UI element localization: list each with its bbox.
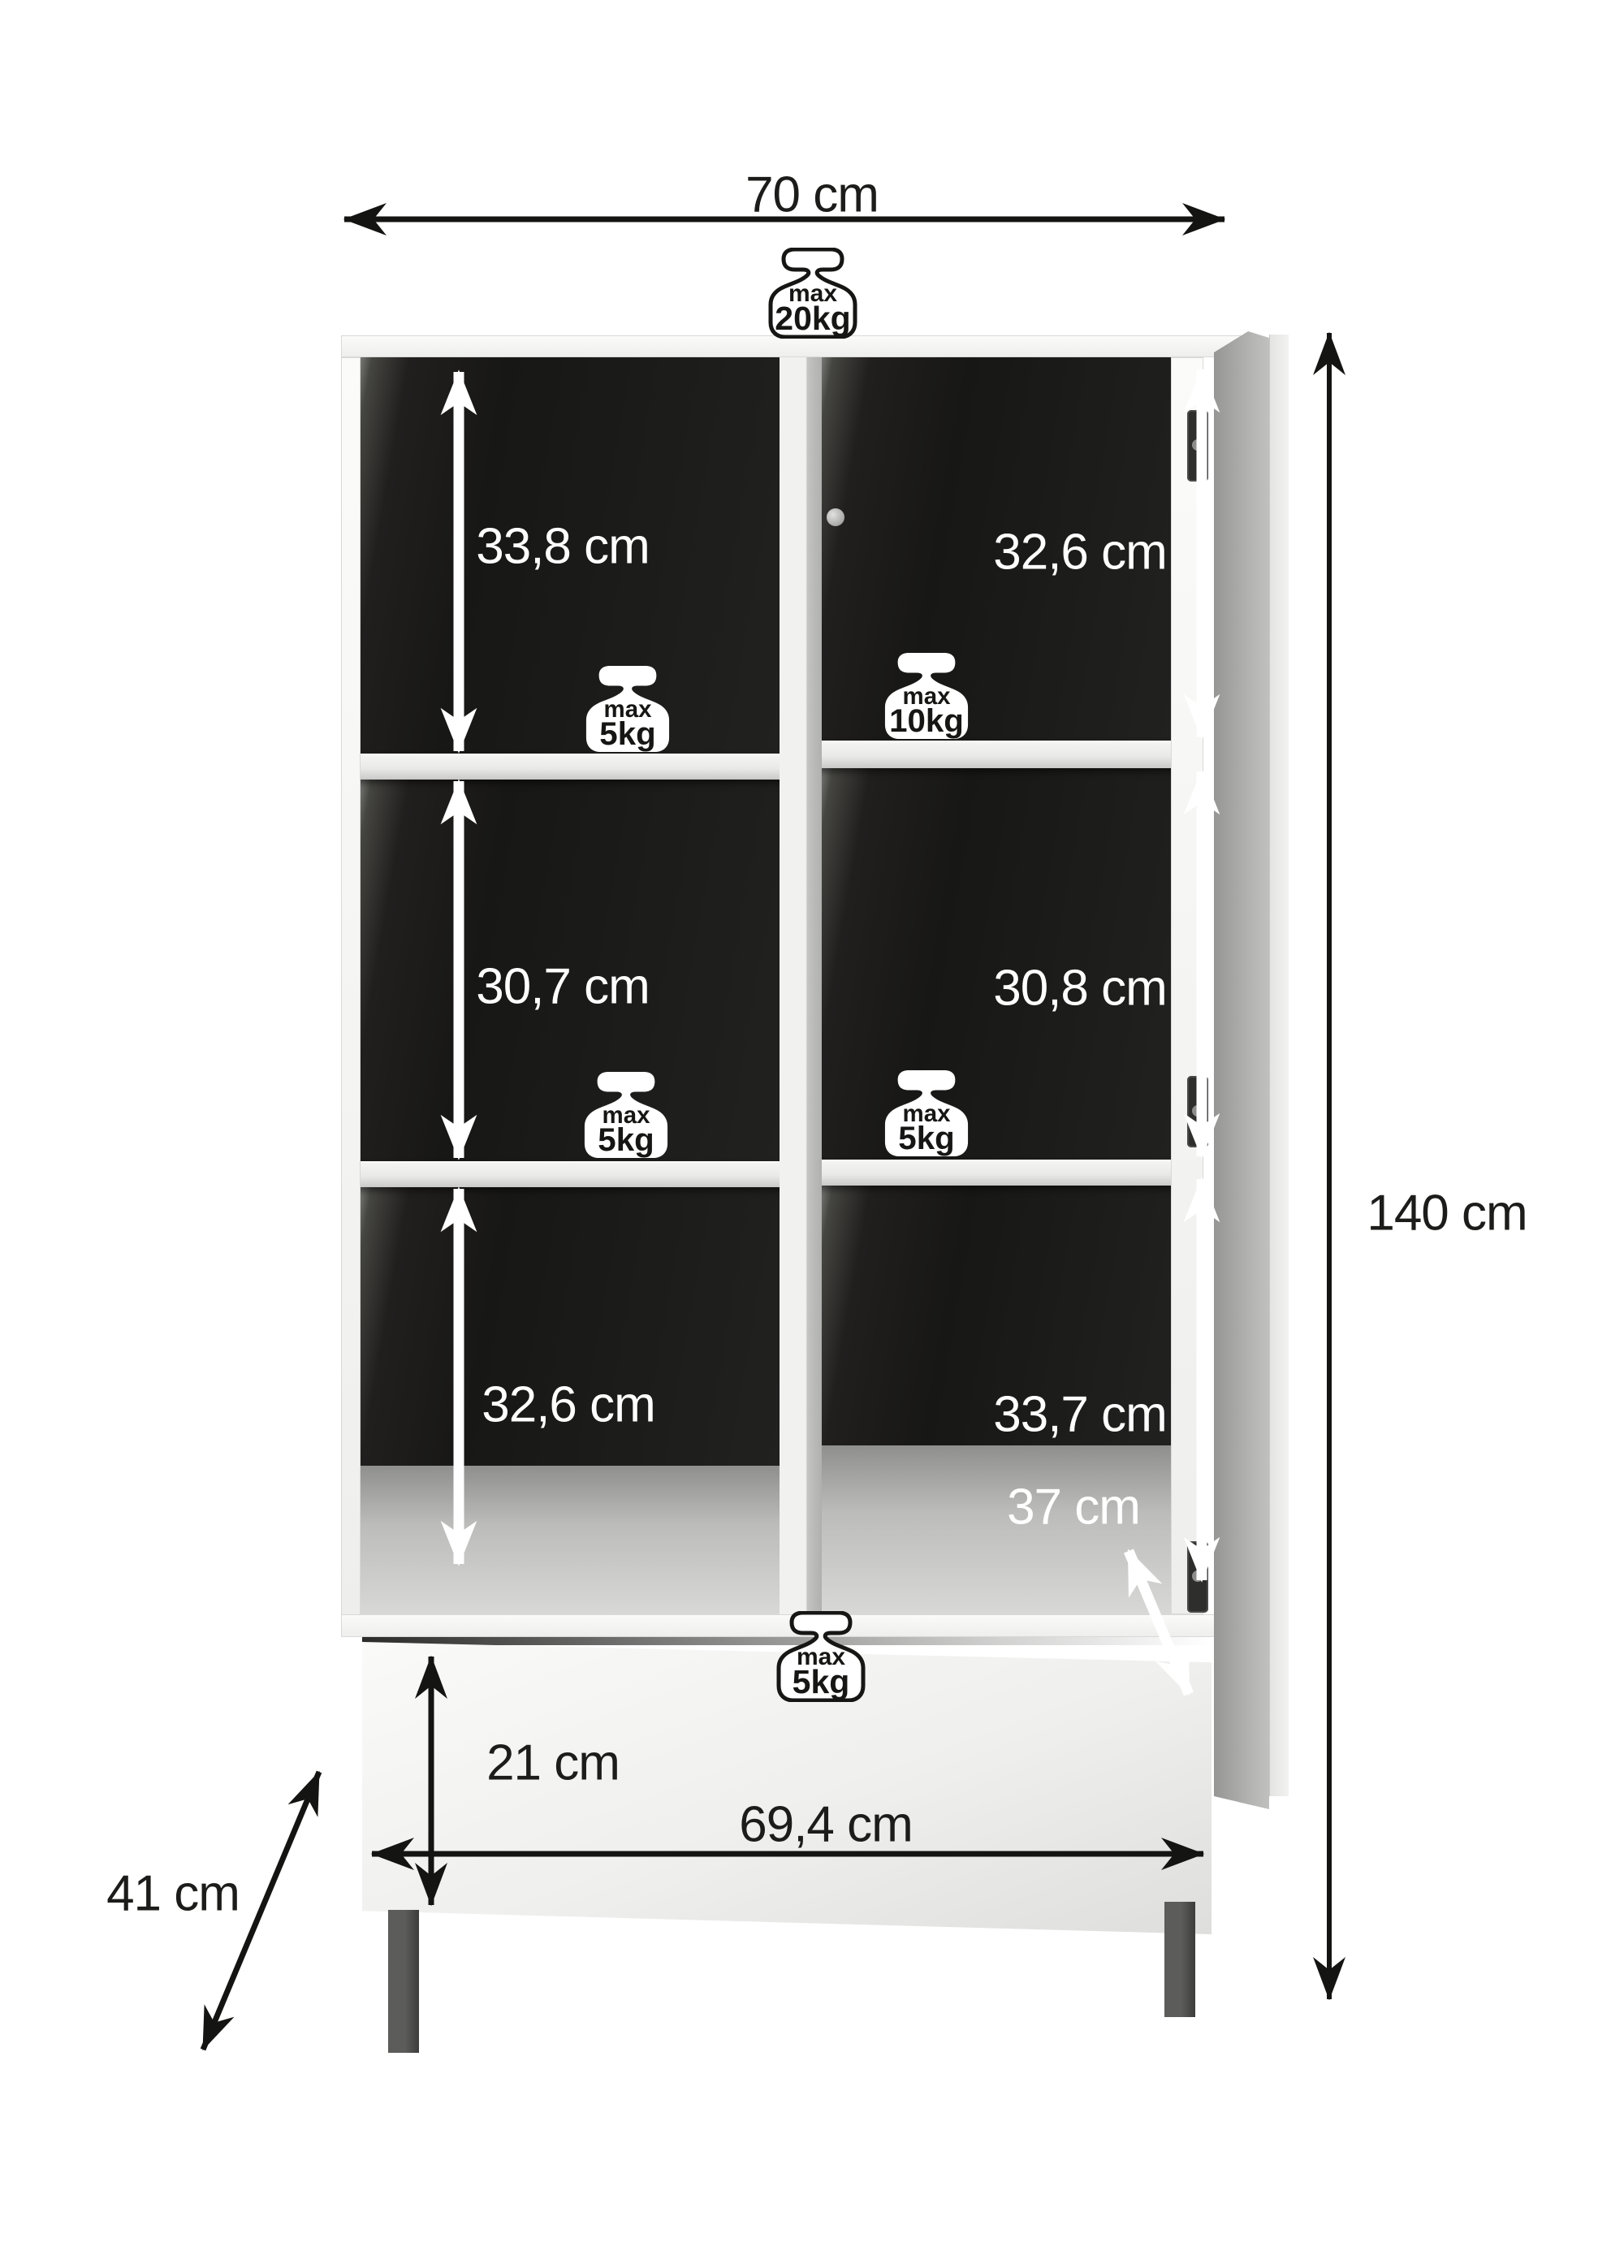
max-load-icon-top: max 20kg <box>763 248 862 339</box>
label-drawer-height: 21 cm <box>486 1734 620 1792</box>
label-height-bottom-left: 32,6 cm <box>482 1376 655 1434</box>
max-load-icon-shelf-top-right: max 10kg <box>879 651 974 741</box>
cabinet-door-front-edge <box>1269 335 1289 1796</box>
cabinet-top-board <box>341 335 1242 357</box>
cabinet-door-inner-face <box>1214 331 1269 1809</box>
door-hinge-middle <box>1187 1076 1208 1147</box>
max-load-icon-shelf-top-left: max 5kg <box>580 664 676 754</box>
label-drawer-width: 69,4 cm <box>739 1796 913 1854</box>
furniture-dimension-diagram: max 20kg max 5kg max 10kg max 5kg max 5k… <box>0 0 1624 2268</box>
max-load-icon-drawer: max 5kg <box>771 1611 870 1702</box>
svg-text:5kg: 5kg <box>598 1121 654 1158</box>
shelf-right-upper <box>812 741 1176 768</box>
label-height-middle-right: 30,8 cm <box>993 960 1167 1017</box>
max-load-icon-shelf-middle-left: max 5kg <box>578 1070 674 1160</box>
label-height-total: 140 cm <box>1367 1185 1527 1242</box>
svg-text:20kg: 20kg <box>775 300 850 337</box>
cabinet-left-wall <box>341 357 361 1637</box>
label-height-top-left: 33,8 cm <box>476 518 650 576</box>
shelf-left-upper <box>351 754 786 780</box>
cabinet-right-wall <box>1171 357 1203 1614</box>
svg-text:10kg: 10kg <box>889 702 964 739</box>
shelf-right-lower <box>812 1160 1176 1186</box>
shelf-left-lower <box>351 1161 786 1187</box>
max-load-icon-shelf-middle-right: max 5kg <box>879 1069 974 1158</box>
label-width-top: 70 cm <box>745 166 879 224</box>
door-hinge-bottom <box>1187 1541 1208 1613</box>
label-depth-total: 41 cm <box>106 1865 240 1923</box>
label-height-bottom-right: 33,7 cm <box>993 1386 1167 1444</box>
label-height-top-right: 32,6 cm <box>993 524 1167 581</box>
cabinet-leg-left <box>388 1910 419 2053</box>
svg-text:5kg: 5kg <box>599 715 655 752</box>
cabinet-floor-left <box>361 1466 780 1614</box>
cabinet-leg-right <box>1164 1902 1195 2017</box>
svg-text:5kg: 5kg <box>793 1663 850 1700</box>
door-hinge-top <box>1187 410 1208 482</box>
cabinet-center-divider <box>780 357 822 1614</box>
label-shelf-depth: 37 cm <box>1007 1479 1140 1536</box>
label-height-middle-left: 30,7 cm <box>476 958 650 1016</box>
svg-text:5kg: 5kg <box>898 1120 954 1156</box>
door-knob <box>827 508 844 526</box>
